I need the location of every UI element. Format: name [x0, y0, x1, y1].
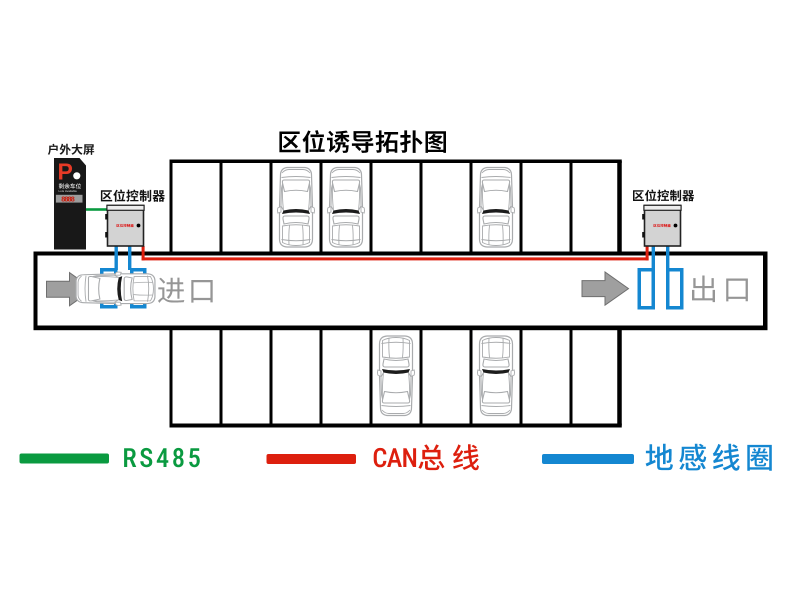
svg-text:8888: 8888 [61, 194, 75, 203]
svg-text:P: P [58, 159, 73, 185]
svg-text:Lots Available: Lots Available [59, 189, 78, 193]
